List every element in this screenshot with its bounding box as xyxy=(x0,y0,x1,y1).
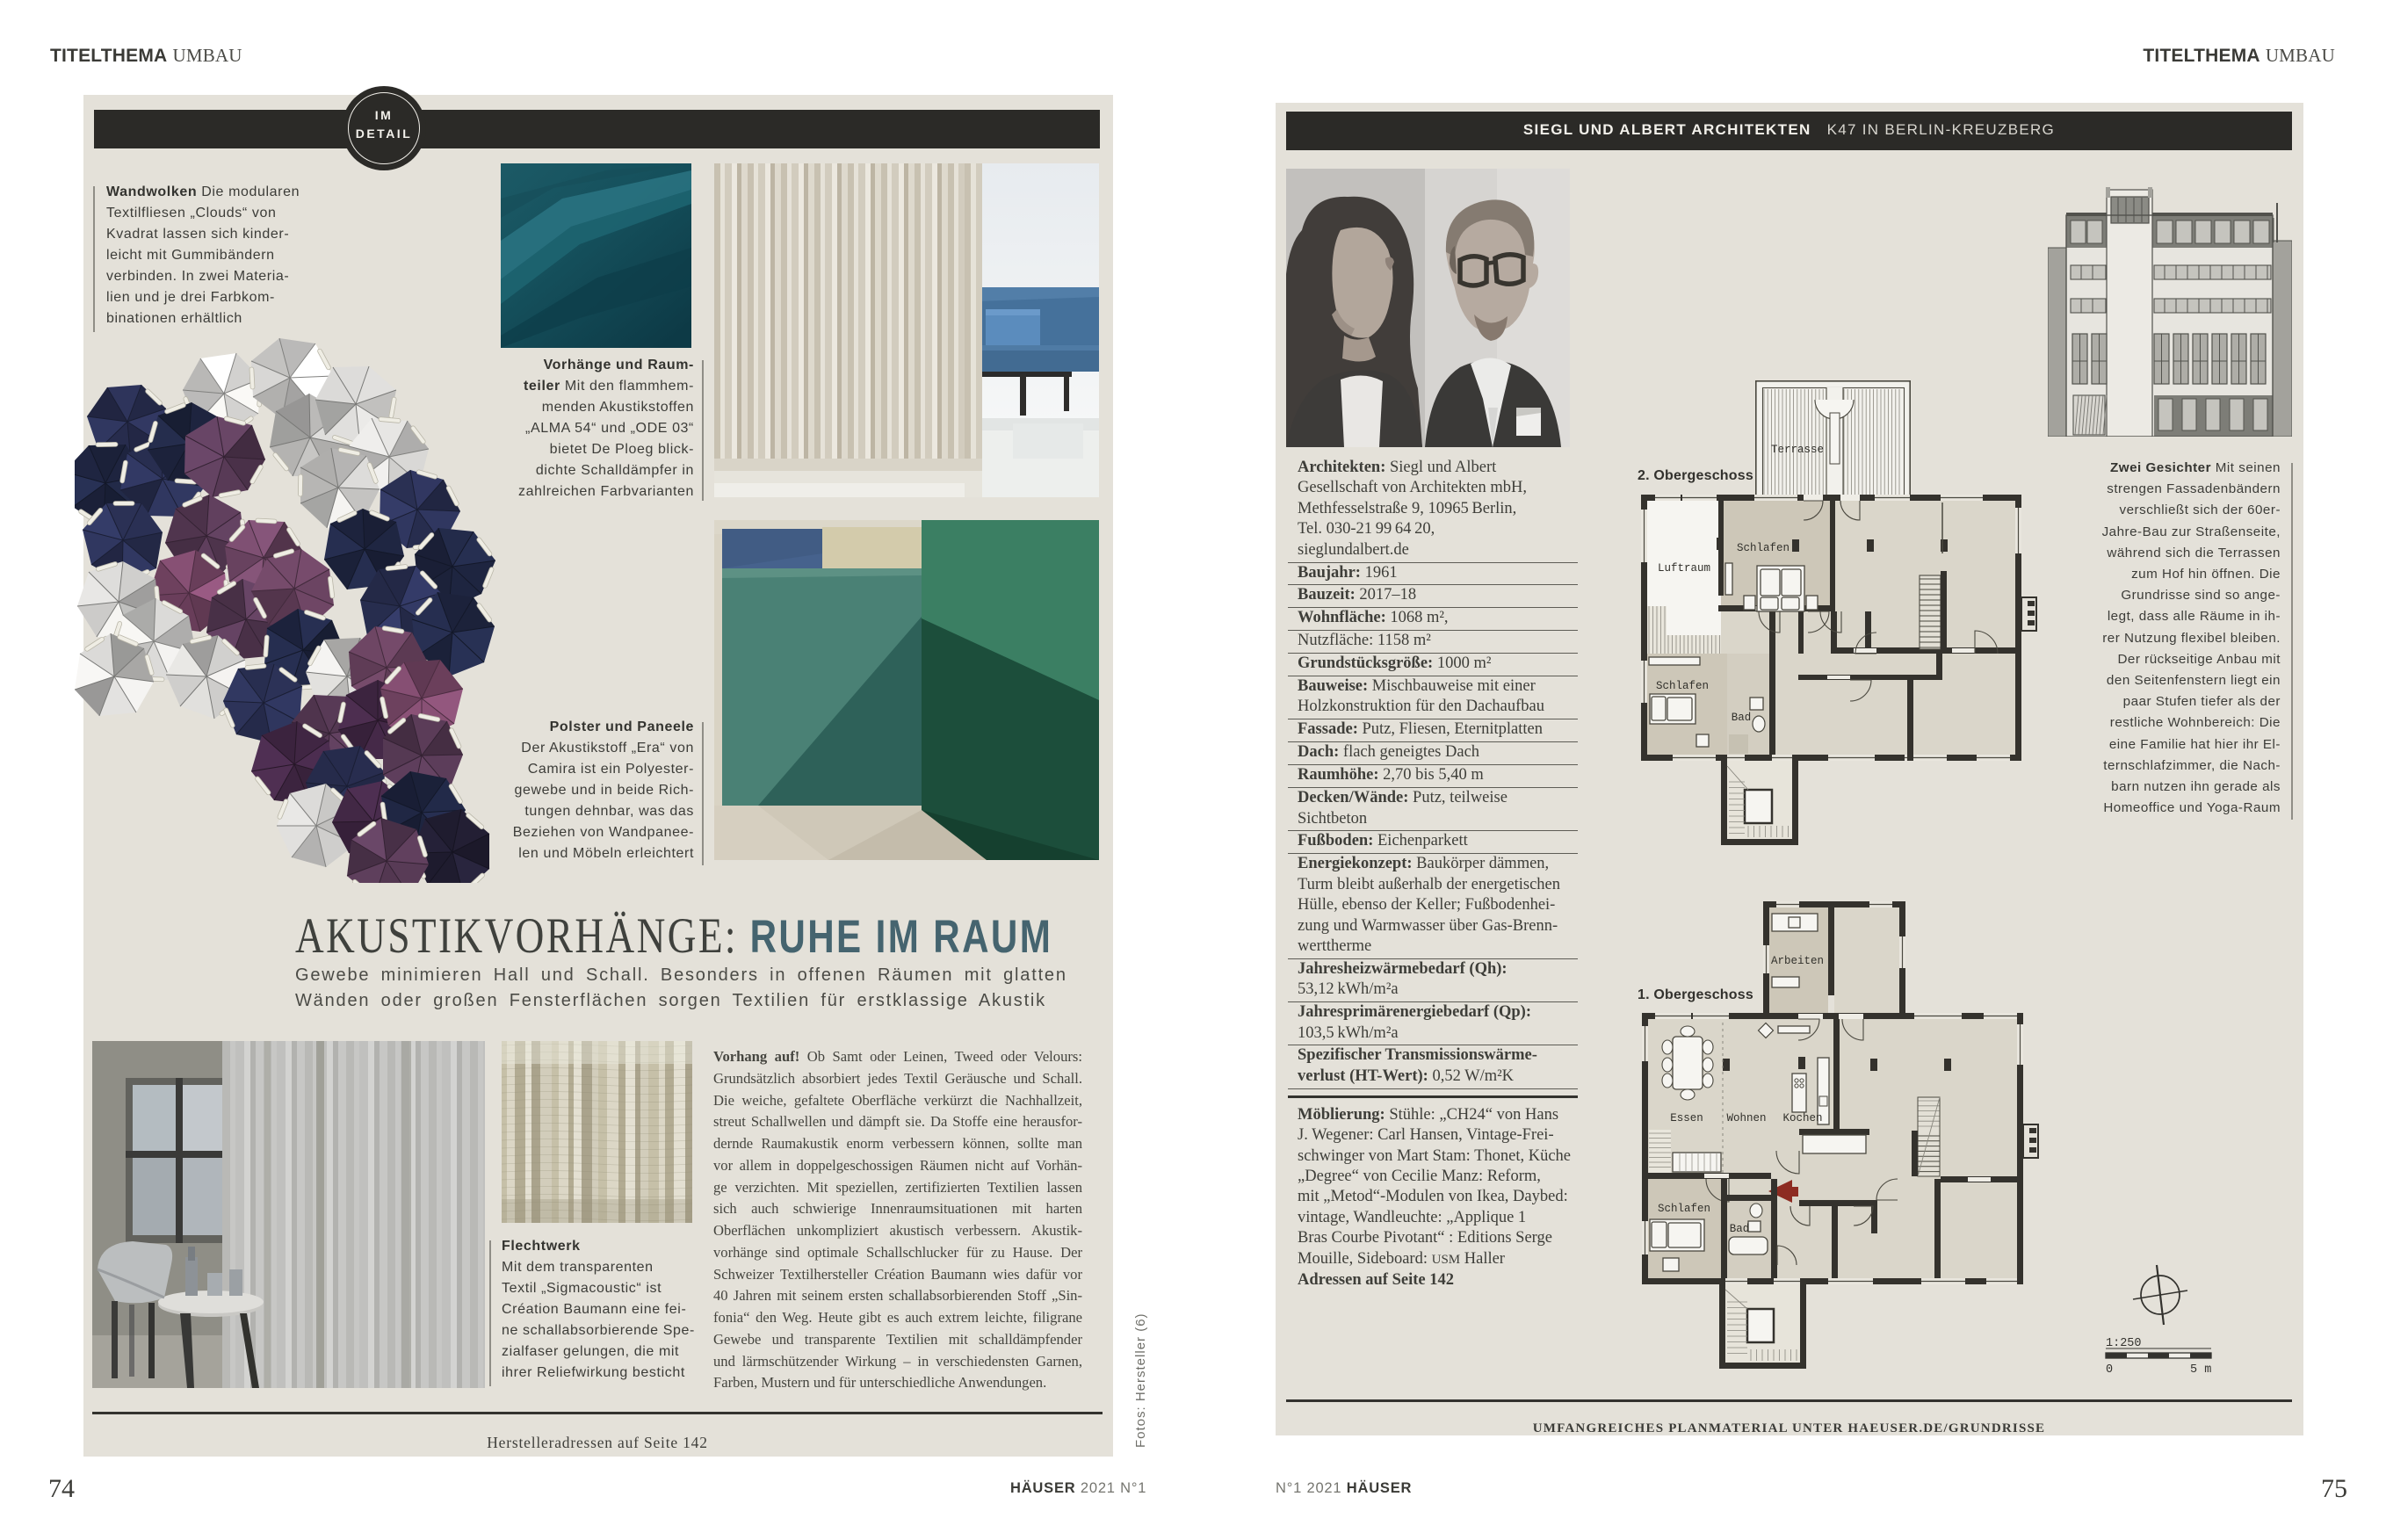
svg-text:Terrasse: Terrasse xyxy=(1771,444,1824,456)
svg-text:Schlafen: Schlafen xyxy=(1656,680,1709,692)
svg-text:5 m: 5 m xyxy=(2190,1363,2211,1377)
svg-text:Schlafen: Schlafen xyxy=(1658,1203,1710,1215)
svg-text:Luftraum: Luftraum xyxy=(1658,562,1710,575)
svg-text:Schlafen: Schlafen xyxy=(1737,542,1789,554)
svg-text:Bad: Bad xyxy=(1732,712,1752,724)
svg-text:Bad: Bad xyxy=(1730,1223,1750,1235)
svg-text:Arbeiten: Arbeiten xyxy=(1771,955,1824,967)
svg-text:Essen: Essen xyxy=(1670,1112,1703,1124)
svg-text:Kochen: Kochen xyxy=(1782,1112,1822,1124)
svg-text:0: 0 xyxy=(2106,1363,2113,1377)
svg-text:Wohnen: Wohnen xyxy=(1726,1112,1766,1124)
